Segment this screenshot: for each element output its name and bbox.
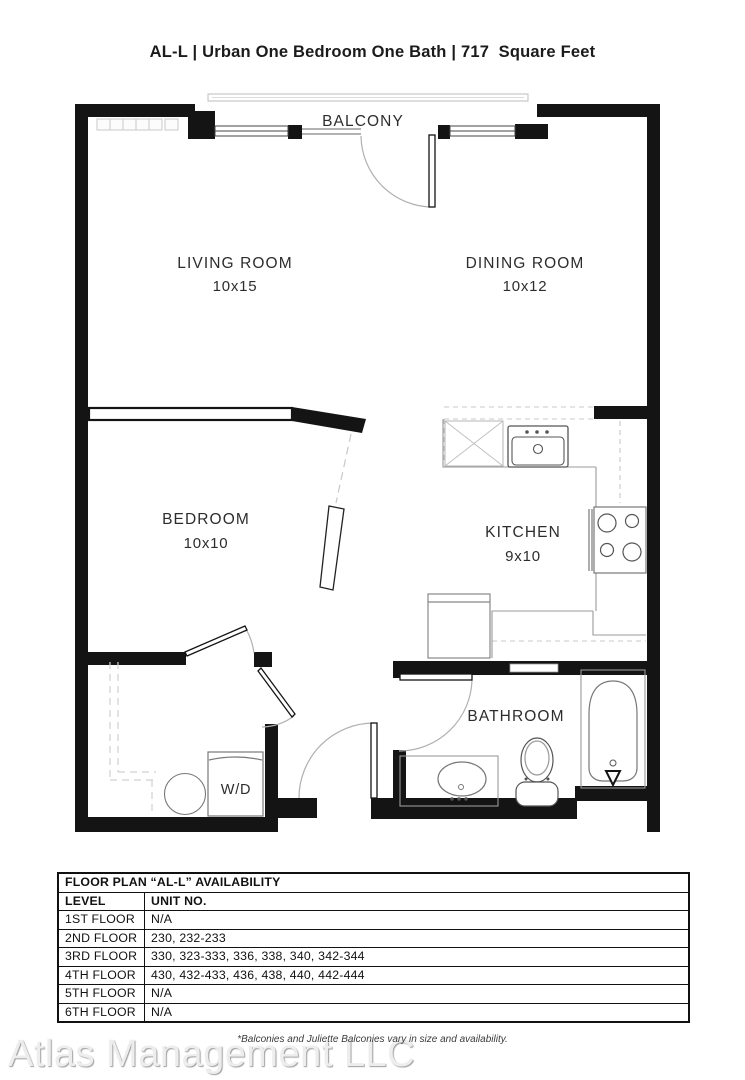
bedroom-dims: 10x10 (184, 535, 229, 552)
units-cell: N/A (145, 985, 688, 1003)
balcony-window-left (215, 126, 288, 136)
closet-rod (110, 662, 156, 812)
balcony-railing (208, 94, 528, 101)
flyer-page: AL-L | Urban One Bedroom One Bath | 717 … (0, 0, 745, 1080)
table-title-row: FLOOR PLAN “AL-L” AVAILABILITY (59, 874, 688, 892)
closet-door (258, 668, 295, 727)
table-row: 1ST FLOOR N/A (59, 910, 688, 929)
dining-room-dims: 10x12 (503, 278, 548, 295)
level-cell: 1ST FLOOR (59, 911, 145, 929)
units-cell: 230, 232-233 (145, 930, 688, 948)
units-cell: N/A (145, 1004, 688, 1022)
living-room-label: LIVING ROOM (177, 255, 292, 272)
availability-table: FLOOR PLAN “AL-L” AVAILABILITY LEVEL UNI… (57, 872, 690, 1023)
bathtub (581, 670, 645, 788)
table-row: 5TH FLOOR N/A (59, 984, 688, 1003)
column-header-unit: UNIT NO. (145, 893, 688, 911)
bedroom-sliding-door (320, 434, 351, 590)
balcony-footnote: *Balconies and Juliette Balconies vary i… (0, 1034, 745, 1045)
bedroom-label: BEDROOM (162, 511, 250, 528)
level-cell: 6TH FLOOR (59, 1004, 145, 1022)
kitchen-label: KITCHEN (485, 524, 561, 541)
dining-room-label: DINING ROOM (466, 255, 585, 272)
bathroom-label: BATHROOM (467, 708, 564, 725)
table-row: 3RD FLOOR 330, 323-333, 336, 338, 340, 3… (59, 947, 688, 966)
level-cell: 3RD FLOOR (59, 948, 145, 966)
refrigerator (428, 594, 490, 658)
bedroom-door (185, 626, 254, 656)
toilet (516, 738, 558, 806)
column-header-level: LEVEL (59, 893, 145, 911)
wall-inset (510, 664, 558, 672)
stove (589, 507, 646, 573)
table-header-row: LEVEL UNIT NO. (59, 892, 688, 911)
entry-door (299, 723, 377, 798)
baseboard-heater (97, 119, 178, 130)
kitchen-dims: 9x10 (505, 548, 541, 565)
water-heater (165, 774, 206, 815)
units-cell: 430, 432-433, 436, 438, 440, 442-444 (145, 967, 688, 985)
balcony-door (361, 135, 435, 207)
units-cell: N/A (145, 911, 688, 929)
living-room-dims: 10x15 (213, 278, 258, 295)
units-cell: 330, 323-333, 336, 338, 340, 342-344 (145, 948, 688, 966)
table-row: 4TH FLOOR 430, 432-433, 436, 438, 440, 4… (59, 966, 688, 985)
table-row: 2ND FLOOR 230, 232-233 (59, 929, 688, 948)
level-cell: 2ND FLOOR (59, 930, 145, 948)
balcony-window-right (450, 126, 515, 136)
kitchen-sink (508, 426, 568, 467)
bathroom-door (399, 674, 472, 751)
table-row: 6TH FLOOR N/A (59, 1003, 688, 1022)
washer-dryer-label: W/D (221, 782, 252, 798)
table-title: FLOOR PLAN “AL-L” AVAILABILITY (59, 874, 688, 892)
level-cell: 5TH FLOOR (59, 985, 145, 1003)
level-cell: 4TH FLOOR (59, 967, 145, 985)
floor-plan: BALCONY LIVING ROOM 10x15 DINING ROOM 10… (0, 0, 745, 860)
balcony-label: BALCONY (322, 113, 404, 130)
bedroom-partition-wall (89, 408, 292, 420)
